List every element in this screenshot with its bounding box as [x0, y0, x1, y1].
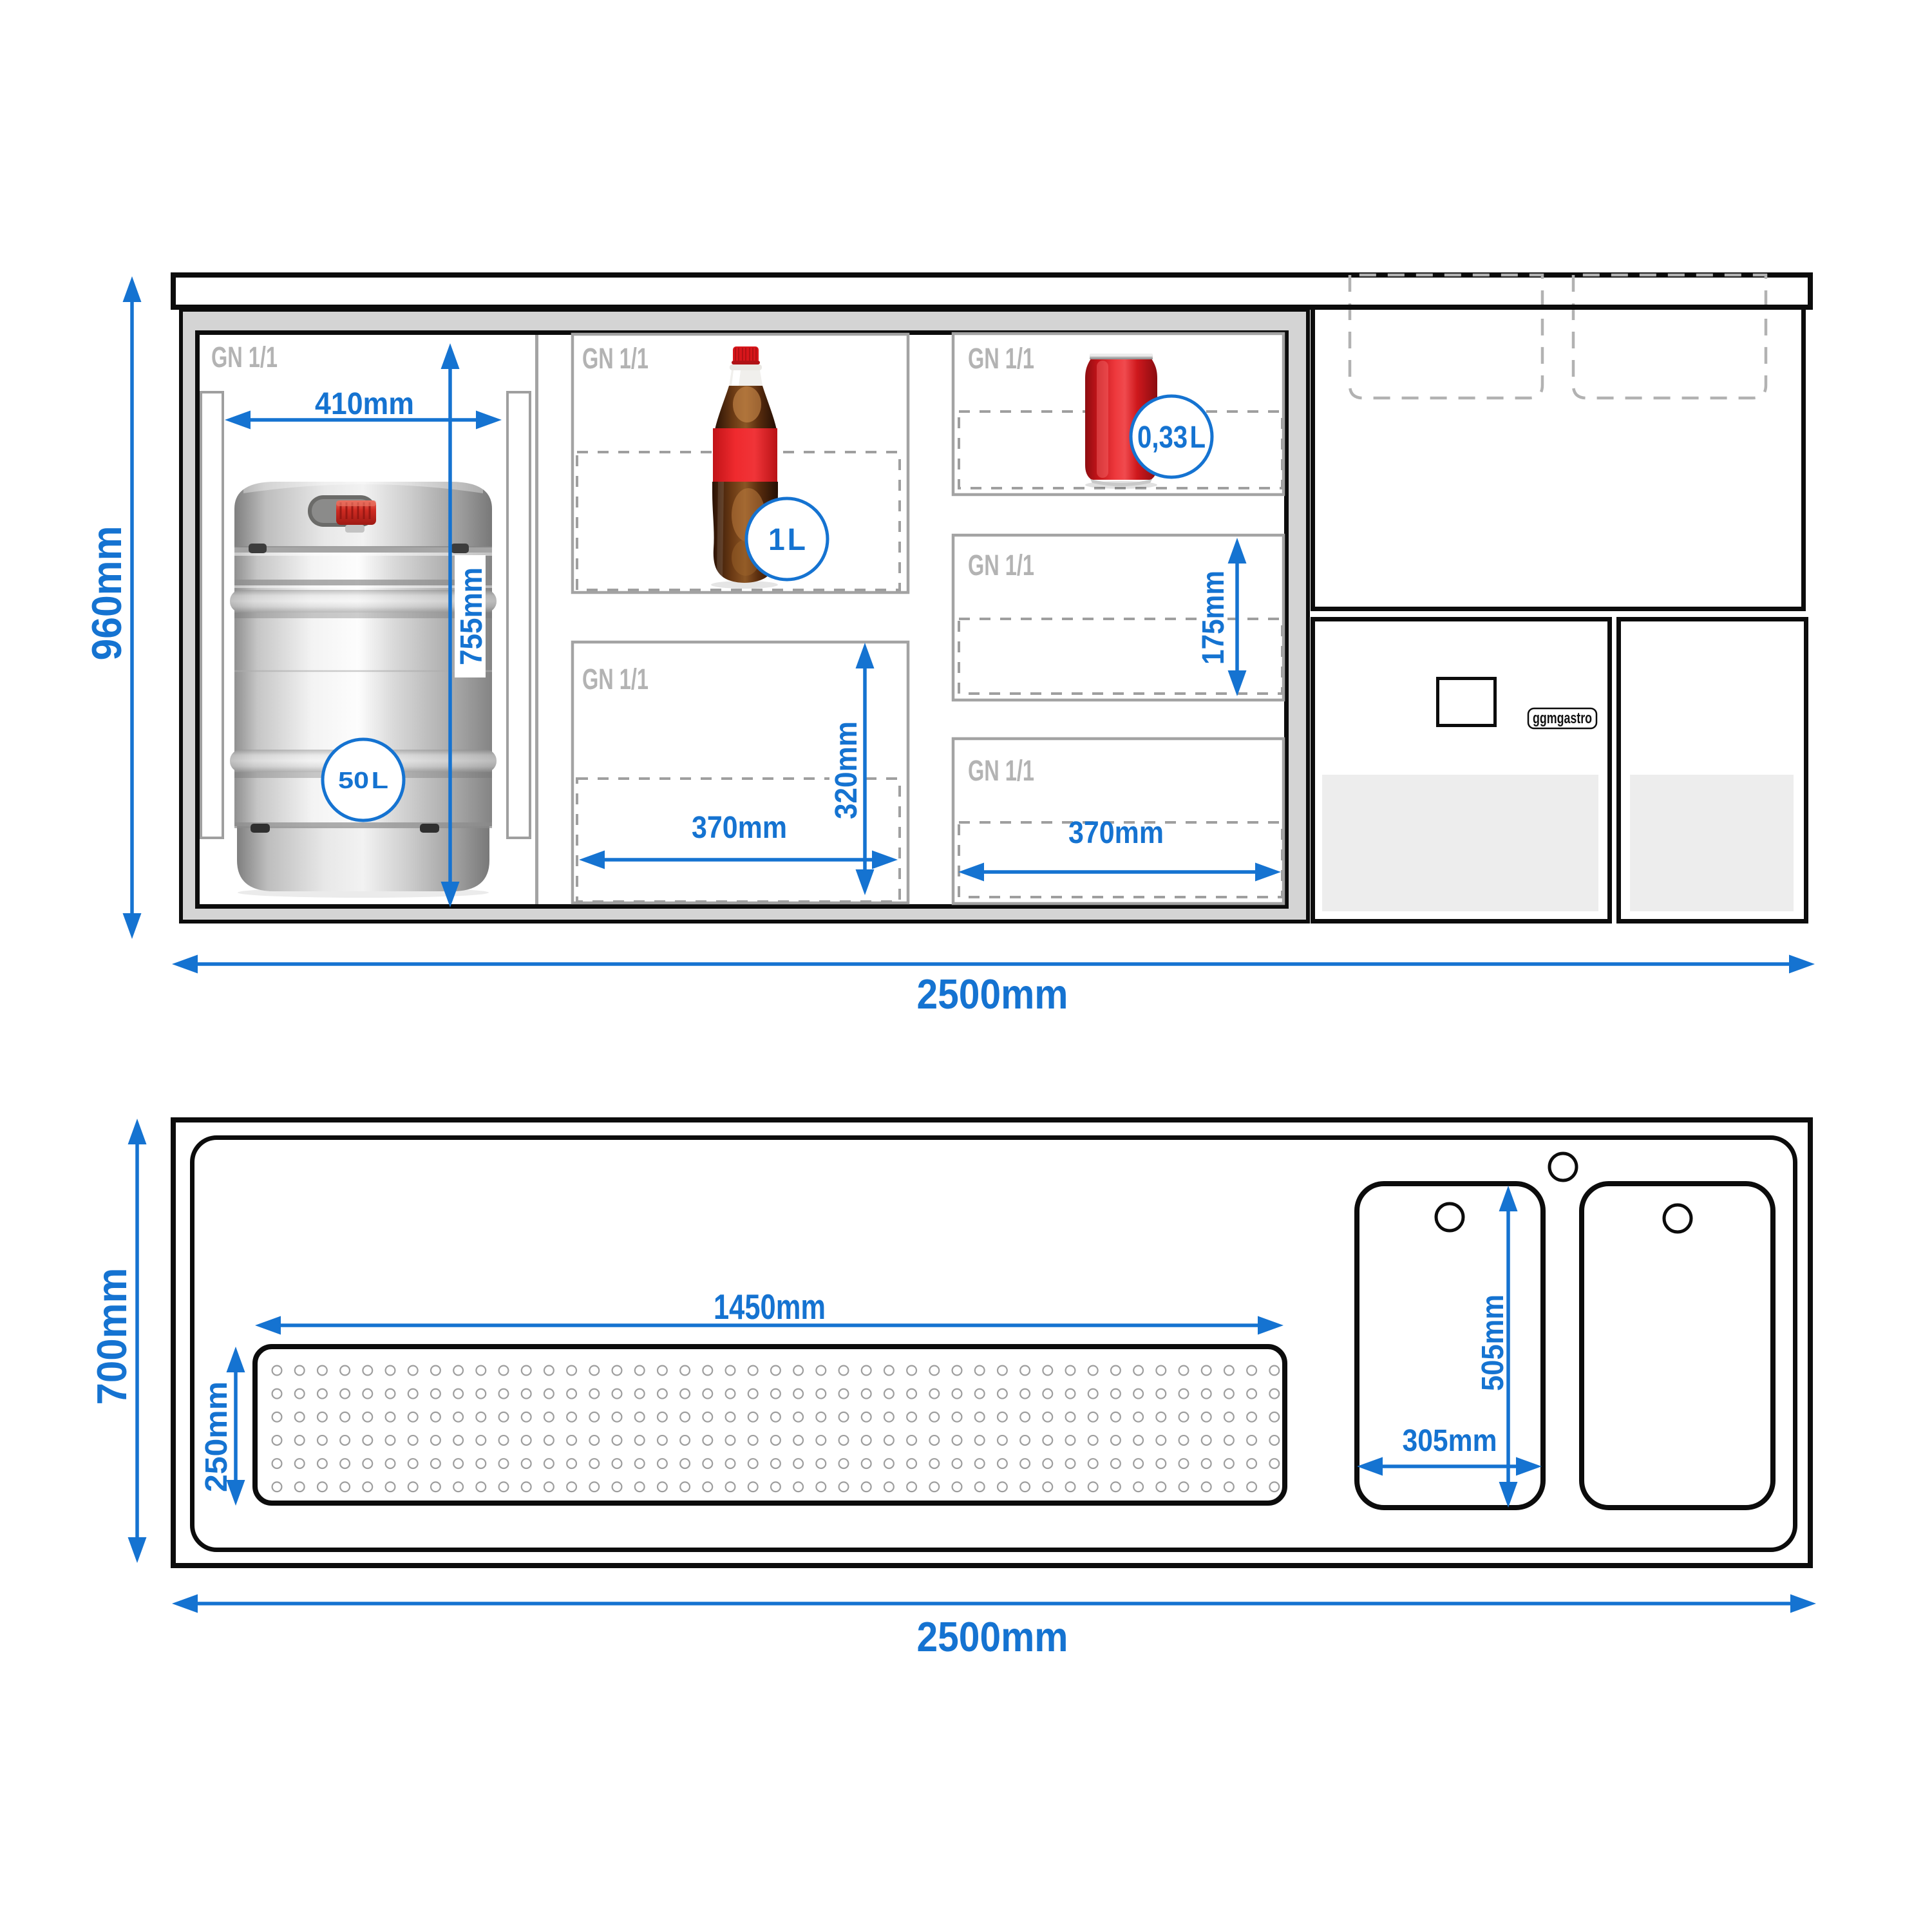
- svg-text:755mm: 755mm: [455, 567, 489, 665]
- svg-text:GN 1/1: GN 1/1: [211, 341, 278, 374]
- svg-text:0,33 L: 0,33 L: [1137, 421, 1206, 455]
- svg-text:370mm: 370mm: [692, 811, 787, 845]
- svg-text:175mm: 175mm: [1197, 571, 1231, 665]
- svg-text:960mm: 960mm: [83, 526, 130, 661]
- svg-text:GN 1/1: GN 1/1: [968, 754, 1034, 787]
- svg-text:GN 1/1: GN 1/1: [968, 342, 1034, 375]
- svg-text:1 L: 1 L: [768, 523, 806, 557]
- svg-text:320mm: 320mm: [829, 721, 864, 819]
- svg-text:410mm: 410mm: [315, 387, 414, 421]
- svg-text:305mm: 305mm: [1403, 1424, 1497, 1458]
- svg-text:GN 1/1: GN 1/1: [582, 342, 649, 375]
- svg-text:ggmgastro: ggmgastro: [1533, 710, 1592, 727]
- svg-text:250mm: 250mm: [200, 1381, 234, 1492]
- svg-text:GN 1/1: GN 1/1: [968, 549, 1034, 582]
- svg-text:2500mm: 2500mm: [917, 1613, 1068, 1660]
- svg-text:GN 1/1: GN 1/1: [582, 663, 649, 696]
- svg-text:700mm: 700mm: [88, 1268, 135, 1405]
- svg-text:1450mm: 1450mm: [714, 1287, 826, 1327]
- svg-text:2500mm: 2500mm: [917, 971, 1068, 1018]
- svg-text:505mm: 505mm: [1476, 1294, 1510, 1391]
- svg-text:50 L: 50 L: [338, 767, 388, 793]
- svg-text:370mm: 370mm: [1068, 816, 1164, 850]
